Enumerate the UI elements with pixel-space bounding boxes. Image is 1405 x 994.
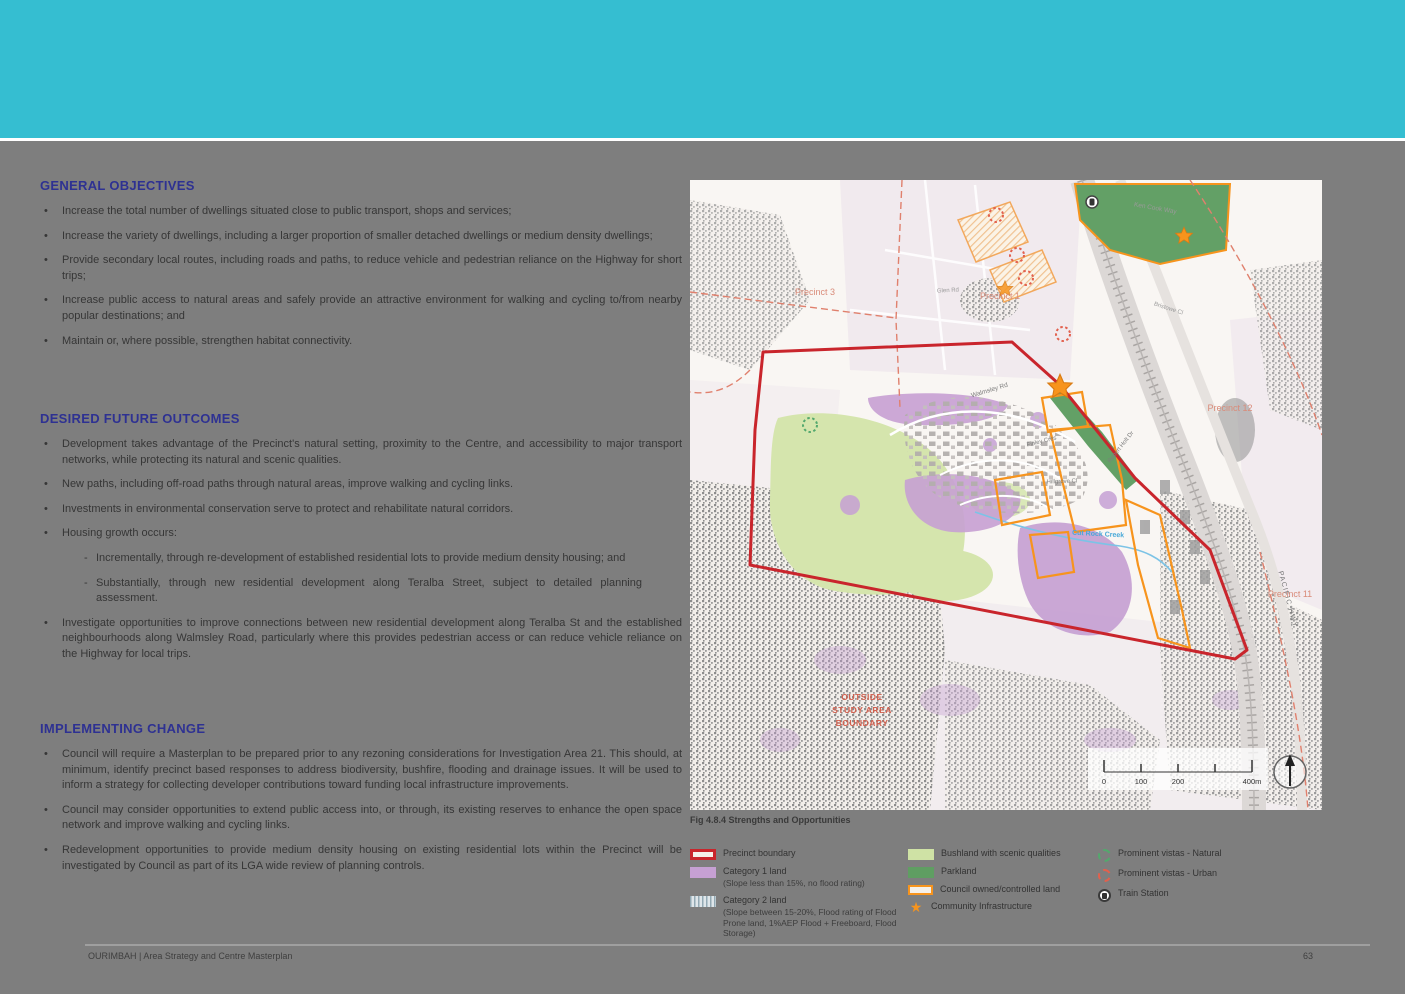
strategy-map-svg: Precinct 3 Precinct 1 Precinct 12 Precin… <box>690 180 1322 810</box>
bullet-item: Council may consider opportunities to ex… <box>40 803 682 834</box>
svg-text:OUTSIDE: OUTSIDE <box>841 692 882 702</box>
general-objectives-title: GENERAL OBJECTIVES <box>40 178 682 193</box>
legend-item-parkland: Parkland <box>908 866 1098 878</box>
bullet-item: Council will require a Masterplan to be … <box>40 747 682 794</box>
legend-item-category2: Category 2 land (Slope between 15-20%, F… <box>690 895 904 939</box>
footer-document-title: OURIMBAH | Area Strategy and Centre Mast… <box>88 951 292 961</box>
desired-outcomes-title: DESIRED FUTURE OUTCOMES <box>40 411 682 426</box>
footer-page-number: 63 <box>1303 951 1313 961</box>
precinct-boundary-swatch <box>690 849 716 860</box>
map-caption: Fig 4.8.4 Strengths and Opportunities <box>690 815 851 825</box>
category2-swatch <box>690 896 716 907</box>
implementing-change-list: Council will require a Masterplan to be … <box>40 747 682 874</box>
train-station-icon <box>1086 196 1098 208</box>
bullet-item: Development takes advantage of the Preci… <box>40 437 682 468</box>
legend-column-1: Precinct boundary Category 1 land (Slope… <box>690 848 904 945</box>
bullet-item: Provide secondary local routes, includin… <box>40 253 682 284</box>
label-glen-rd: Glen Rd <box>937 287 959 294</box>
bullet-item: Increase the total number of dwellings s… <box>40 204 682 220</box>
header-band <box>0 0 1405 138</box>
parkland-swatch <box>908 867 934 878</box>
svg-text:STUDY AREA: STUDY AREA <box>832 705 892 715</box>
bullet-item: Investigate opportunities to improve con… <box>40 616 682 663</box>
bullet-item: New paths, including off-road paths thro… <box>40 477 682 493</box>
council-land-swatch <box>908 885 933 895</box>
section-implementing-change: IMPLEMENTING CHANGE Council will require… <box>40 721 682 883</box>
sub-bullet-item: Substantially, through new residential d… <box>82 576 642 607</box>
train-station-icon <box>1098 889 1111 902</box>
scale-label-100: 100 <box>1135 777 1148 786</box>
bullet-item: Maintain or, where possible, strengthen … <box>40 334 682 350</box>
legend-column-3: Prominent vistas - Natural Prominent vis… <box>1096 848 1331 908</box>
label-precinct-12: Precinct 12 <box>1207 403 1252 413</box>
desired-outcomes-sublist: Incrementally, through re-development of… <box>82 551 642 607</box>
desired-outcomes-list-continued: Investigate opportunities to improve con… <box>40 616 682 663</box>
label-precinct-3: Precinct 3 <box>795 287 835 297</box>
sub-bullet-item: Incrementally, through re-development of… <box>82 551 642 567</box>
scale-label-400m: 400m <box>1243 777 1262 786</box>
bullet-item: Increase public access to natural areas … <box>40 293 682 324</box>
svg-text:BOUNDARY: BOUNDARY <box>836 718 889 728</box>
document-page: GENERAL OBJECTIVES Increase the total nu… <box>0 0 1405 994</box>
vista-urban-icon <box>1098 869 1111 882</box>
strategy-map: Precinct 3 Precinct 1 Precinct 12 Precin… <box>690 180 1322 810</box>
implementing-change-title: IMPLEMENTING CHANGE <box>40 721 682 736</box>
legend-item-vistas-natural: Prominent vistas - Natural <box>1096 848 1331 862</box>
bullet-item: Increase the variety of dwellings, inclu… <box>40 229 682 245</box>
footer-rule <box>85 944 1370 946</box>
legend-item-community-infrastructure: ★ Community Infrastructure <box>908 901 1098 914</box>
header-underline <box>0 138 1405 141</box>
scale-bar: 0 100 200 400m <box>1088 748 1268 790</box>
label-hillgrove-cl: Hillgrove Cl <box>1047 478 1078 485</box>
legend-item-council-land: Council owned/controlled land <box>908 884 1098 895</box>
bullet-item: Redevelopment opportunities to provide m… <box>40 843 682 874</box>
legend-item-train-station: Train Station <box>1096 888 1331 902</box>
bullet-item: Housing growth occurs: <box>40 526 682 542</box>
legend-item-category1: Category 1 land (Slope less than 15%, no… <box>690 866 904 889</box>
section-desired-future-outcomes: DESIRED FUTURE OUTCOMES Development take… <box>40 411 682 672</box>
legend-item-vistas-urban: Prominent vistas - Urban <box>1096 868 1331 882</box>
bullet-item: Investments in environmental conservatio… <box>40 502 682 518</box>
legend-item-bushland: Bushland with scenic qualities <box>908 848 1098 860</box>
label-precinct-1: Precinct 1 <box>980 291 1020 301</box>
desired-outcomes-list: Development takes advantage of the Preci… <box>40 437 682 542</box>
category1-swatch <box>690 867 716 878</box>
scale-label-0: 0 <box>1102 777 1106 786</box>
legend-item-precinct-boundary: Precinct boundary <box>690 848 904 860</box>
legend-column-2: Bushland with scenic qualities Parkland … <box>908 848 1098 920</box>
star-icon: ★ <box>908 900 924 914</box>
general-objectives-list: Increase the total number of dwellings s… <box>40 204 682 349</box>
scale-label-200: 200 <box>1172 777 1185 786</box>
bushland-swatch <box>908 849 934 860</box>
vista-natural-icon <box>1098 849 1111 862</box>
section-general-objectives: GENERAL OBJECTIVES Increase the total nu… <box>40 178 682 358</box>
